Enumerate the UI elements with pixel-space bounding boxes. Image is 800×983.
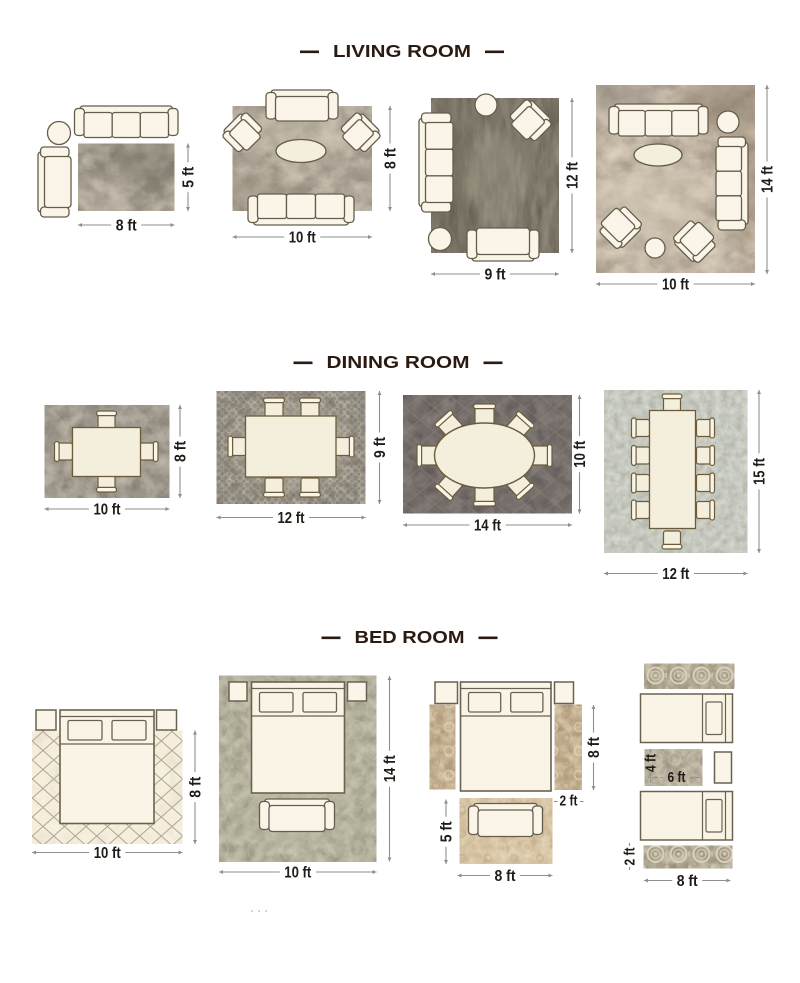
svg-text:10 ft: 10 ft — [94, 502, 121, 519]
svg-text:5 ft: 5 ft — [181, 167, 198, 188]
svg-text:2 ft: 2 ft — [560, 794, 578, 810]
svg-text:LIVING ROOM: LIVING ROOM — [333, 41, 471, 61]
svg-text:10 ft: 10 ft — [662, 277, 689, 294]
svg-text:8 ft: 8 ft — [116, 218, 137, 235]
svg-text:8 ft: 8 ft — [188, 777, 205, 798]
svg-text:5 ft: 5 ft — [439, 821, 456, 842]
svg-text:8 ft: 8 ft — [586, 737, 603, 758]
svg-text:6 ft: 6 ft — [668, 770, 686, 786]
svg-text:10 ft: 10 ft — [284, 865, 311, 882]
svg-text:DINING ROOM: DINING ROOM — [327, 352, 470, 372]
svg-text:8 ft: 8 ft — [677, 873, 698, 890]
svg-text:12 ft: 12 ft — [565, 162, 582, 189]
svg-text:10 ft: 10 ft — [94, 845, 121, 862]
svg-text:8 ft: 8 ft — [495, 868, 516, 885]
svg-text:14 ft: 14 ft — [382, 755, 399, 782]
svg-text:4 ft: 4 ft — [644, 754, 660, 772]
svg-text:12 ft: 12 ft — [278, 510, 305, 527]
svg-text:12 ft: 12 ft — [662, 566, 689, 583]
svg-text:9 ft: 9 ft — [372, 437, 389, 458]
svg-text:14 ft: 14 ft — [474, 518, 501, 535]
svg-text:BED ROOM: BED ROOM — [355, 627, 465, 647]
svg-text:14 ft: 14 ft — [760, 166, 777, 193]
svg-text:8 ft: 8 ft — [383, 148, 400, 169]
svg-text:10 ft: 10 ft — [572, 441, 589, 468]
svg-text:15 ft: 15 ft — [752, 458, 769, 485]
svg-text:8 ft: 8 ft — [173, 441, 190, 462]
svg-text:10 ft: 10 ft — [289, 230, 316, 247]
svg-text:9 ft: 9 ft — [485, 267, 506, 284]
svg-text:2 ft: 2 ft — [623, 847, 639, 865]
